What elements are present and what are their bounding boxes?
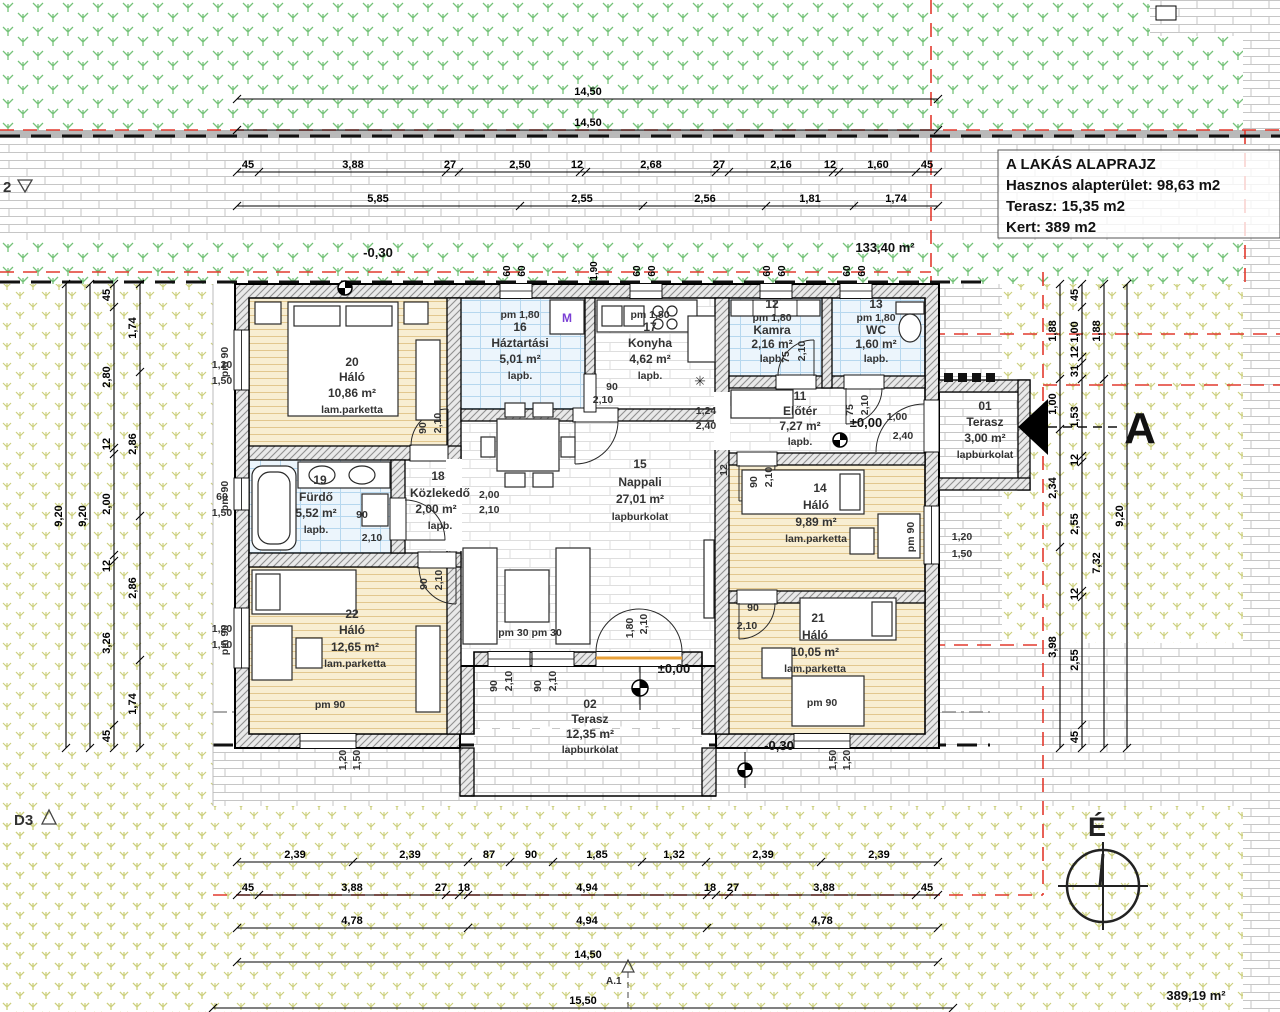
room-area: 10,05 m² — [791, 645, 839, 659]
svg-text:14,50: 14,50 — [574, 86, 602, 98]
room-name: WC — [866, 323, 886, 337]
svg-text:1,00: 1,00 — [1069, 321, 1081, 342]
window-h-halo21-b: 1,50 — [827, 750, 839, 771]
chair — [850, 528, 874, 554]
svg-text:45: 45 — [1069, 289, 1081, 301]
svg-text:14,50: 14,50 — [574, 949, 602, 961]
sill-label-halo21-bottom: pm 90 — [807, 697, 838, 709]
plan-title: A LAKÁS ALAPRAJZ — [1006, 156, 1156, 173]
sofa — [463, 548, 497, 644]
svg-text:12: 12 — [1069, 454, 1081, 466]
svg-text:90: 90 — [525, 849, 537, 861]
door-furdo-frame — [390, 498, 406, 540]
room-name: Háztartási — [491, 336, 548, 350]
room-floor: lapburkolat — [612, 511, 669, 523]
svg-text:3,88: 3,88 — [341, 882, 362, 894]
dim-60-3: 60 — [632, 265, 643, 277]
room-number: 16 — [513, 320, 527, 334]
svg-text:9,20: 9,20 — [1114, 505, 1126, 526]
room-name: Háló — [802, 628, 828, 642]
svg-text:2,39: 2,39 — [399, 849, 420, 861]
corner-symbol — [1156, 6, 1176, 20]
room-name: Nappali — [618, 475, 661, 489]
sill-label-halo22-bottom: pm 90 — [315, 699, 346, 711]
room-area: 12,65 m² — [331, 640, 379, 654]
north-label: É — [1088, 811, 1106, 842]
door-wc-frame — [844, 375, 884, 389]
sill-label-terasz-windows: pm 30 pm 30 — [498, 627, 562, 639]
terasz01-post-3 — [972, 373, 981, 382]
svg-text:2,39: 2,39 — [752, 849, 773, 861]
room-area: 3,00 m² — [964, 431, 1005, 445]
door-kamra-frame — [776, 375, 816, 389]
door-halo22-frame — [418, 552, 456, 568]
chair — [505, 403, 525, 417]
room-floor: lam.parketta — [784, 663, 846, 675]
washing-machine-icon: M — [562, 311, 572, 325]
opening-eloter-h: 2,40 — [696, 420, 717, 432]
svg-text:2,86: 2,86 — [127, 433, 139, 454]
terasz01-wall-bottom — [939, 478, 1030, 490]
floorplan-drawing: 14,50 14,50 453,88272,50122,68272,16121,… — [0, 0, 1280, 1012]
useful-area-line: Hasznos alapterület: 98,63 m2 — [1006, 177, 1220, 194]
room-number: 17 — [643, 320, 657, 334]
room-floor: lapb. — [508, 370, 533, 382]
dim-60-6: 60 — [777, 265, 788, 277]
room-area: 7,27 m² — [779, 419, 820, 433]
svg-text:9,20: 9,20 — [77, 505, 89, 526]
svg-text:4,94: 4,94 — [576, 915, 598, 927]
room-number: 21 — [811, 611, 825, 625]
window-halo21-bottom — [794, 734, 850, 749]
window-nappali1-w: 90 — [488, 680, 500, 692]
window-nappali1-h: 2,10 — [503, 671, 515, 692]
dim-60-5: 60 — [762, 265, 773, 277]
bathtub-inner — [258, 472, 290, 544]
door-halo20-frame — [410, 445, 448, 461]
room-area: 5,01 m² — [499, 352, 540, 366]
chair — [533, 473, 553, 487]
room-floor: lam.parketta — [321, 404, 383, 416]
garden-area-line: Kert: 389 m2 — [1006, 219, 1096, 236]
svg-text:1,81: 1,81 — [799, 193, 820, 205]
svg-text:1,60: 1,60 — [867, 159, 888, 171]
marker-2-label: 2 — [3, 179, 11, 196]
room-area: 12,35 m² — [566, 727, 614, 741]
svg-text:87: 87 — [483, 849, 495, 861]
door-french-h: 2,10 — [638, 614, 650, 635]
room-area: 2,16 m² — [751, 337, 792, 351]
furniture-haztartasi: M — [550, 300, 584, 334]
window-w-halo21-b: 1,20 — [841, 750, 853, 771]
chair — [505, 473, 525, 487]
door-halo14-w: 90 — [748, 476, 760, 488]
svg-text:9,20: 9,20 — [53, 505, 65, 526]
svg-text:4,78: 4,78 — [811, 915, 832, 927]
coffee-table — [505, 570, 549, 622]
svg-text:1,53: 1,53 — [1069, 406, 1081, 427]
svg-text:2,80: 2,80 — [101, 366, 113, 387]
room-number: 12 — [765, 297, 779, 311]
window-halo22-left — [234, 608, 249, 668]
chair — [561, 437, 575, 457]
section-letter: A — [1124, 404, 1156, 453]
window-h-halo22-b: 1,50 — [351, 750, 363, 771]
room-number: 19 — [313, 473, 327, 487]
door-entry-w: 1,00 — [887, 411, 908, 423]
door-konyha-w: 90 — [606, 381, 618, 393]
svg-text:1,74: 1,74 — [127, 316, 139, 338]
door-halo14-frame — [737, 452, 777, 466]
svg-text:12: 12 — [824, 159, 836, 171]
svg-text:3,98: 3,98 — [1047, 636, 1059, 657]
door-furdo-w: 90 — [356, 509, 368, 521]
svg-text:27: 27 — [727, 882, 739, 894]
svg-text:45: 45 — [1069, 731, 1081, 743]
door-halo20-w: 90 — [417, 422, 429, 434]
paving-bottom-right — [990, 643, 1243, 806]
opening-kozlekedo-w: 2,00 — [479, 489, 500, 501]
svg-text:2,39: 2,39 — [284, 849, 305, 861]
level-entry-text: ±0,00 — [850, 415, 882, 430]
sill-label-halo14: pm 90 — [905, 522, 917, 553]
room-floor: lam.parketta — [785, 533, 847, 545]
boiler-icon: ✳ — [694, 373, 706, 389]
room-area: 4,62 m² — [629, 352, 670, 366]
toilet-bowl — [899, 314, 921, 342]
opening-eloter-w: 1,24 — [696, 405, 717, 417]
level-marker-top — [338, 281, 352, 295]
wardrobe — [416, 626, 440, 712]
door-haztartasi-frame — [584, 374, 596, 412]
svg-text:12: 12 — [101, 560, 113, 572]
house: M ✳ — [212, 284, 1030, 797]
room-area: 10,86 m² — [328, 386, 376, 400]
terasz01-post-1 — [944, 373, 953, 382]
wall-thickness: 12 — [718, 464, 730, 476]
window-nappali2-w: 90 — [532, 680, 544, 692]
room-number: 01 — [978, 399, 992, 413]
door-kamra-h: 2,10 — [796, 341, 808, 362]
svg-text:1,88: 1,88 — [1091, 320, 1103, 341]
svg-text:4,78: 4,78 — [341, 915, 362, 927]
door-entry-h: 2,40 — [893, 430, 914, 442]
window-h-furdo: 1,50 — [212, 507, 233, 519]
room-number: 22 — [345, 607, 359, 621]
room-number: 18 — [431, 469, 445, 483]
svg-text:2,00: 2,00 — [101, 493, 113, 514]
door-furdo-h: 2,10 — [362, 532, 383, 544]
pillow — [294, 306, 340, 326]
svg-text:3,26: 3,26 — [101, 632, 113, 653]
svg-text:3,88: 3,88 — [342, 159, 363, 171]
svg-text:1,88: 1,88 — [1047, 320, 1059, 341]
room-name: Háló — [339, 370, 365, 384]
svg-text:14,50: 14,50 — [574, 117, 602, 129]
svg-text:1,00: 1,00 — [1047, 393, 1059, 414]
terrace-area-line: Terasz: 15,35 m2 — [1006, 198, 1125, 215]
tv-cabinet — [704, 540, 714, 618]
svg-text:4,94: 4,94 — [576, 882, 598, 894]
svg-text:27: 27 — [444, 159, 456, 171]
room-number: 11 — [794, 389, 807, 403]
svg-text:45: 45 — [242, 159, 254, 171]
window-w-halo14: 1,20 — [952, 531, 973, 543]
door-halo21-w: 90 — [747, 602, 759, 614]
opening-kozlekedo-h: 2,10 — [479, 504, 500, 516]
svg-text:2,50: 2,50 — [509, 159, 530, 171]
room-name: Háló — [803, 498, 829, 512]
door-halo22-w: 90 — [418, 578, 430, 590]
chair — [296, 638, 322, 668]
room-floor: lam.parketta — [324, 658, 386, 670]
door-konyha-h: 2,10 — [593, 394, 614, 406]
window-nappali-2 — [532, 652, 574, 667]
plot-area-text: 389,19 m² — [1166, 988, 1226, 1003]
room-area: 9,89 m² — [795, 515, 836, 529]
wardrobe — [416, 340, 440, 420]
svg-text:1,32: 1,32 — [663, 849, 684, 861]
door-halo22-h: 2,10 — [433, 570, 445, 591]
svg-text:45: 45 — [101, 730, 113, 742]
wall-p8 — [822, 298, 832, 388]
svg-text:27: 27 — [435, 882, 447, 894]
room-floor: lapb. — [864, 353, 889, 365]
window-furdo — [234, 478, 249, 510]
door-kamra-w: 75 — [780, 351, 792, 363]
sink — [349, 466, 375, 484]
window-halo14 — [924, 506, 939, 564]
svg-text:18: 18 — [704, 882, 716, 894]
door-halo14-h: 2,10 — [763, 467, 775, 488]
marker-d3-label: D3 — [14, 812, 33, 829]
room-floor: lapburkolat — [957, 449, 1014, 461]
svg-text:45: 45 — [101, 289, 113, 301]
room-floor: lapb. — [638, 370, 663, 382]
svg-text:27: 27 — [713, 159, 725, 171]
room-name: Kamra — [753, 323, 791, 337]
window-halo20 — [234, 330, 249, 390]
door-halo21-h: 2,10 — [737, 620, 758, 632]
room-number: 13 — [869, 297, 883, 311]
svg-text:45: 45 — [242, 882, 254, 894]
dim-190: 1,90 — [589, 261, 600, 281]
window-nappali-1 — [488, 652, 530, 667]
svg-text:5,85: 5,85 — [367, 193, 388, 205]
level-top-text: -0,30 — [363, 245, 393, 260]
marker-a1-label: A.1 — [606, 976, 622, 987]
window-w-halo22-b: 1,20 — [337, 750, 349, 771]
room-name: Előtér — [783, 404, 817, 418]
room-name: Konyha — [628, 336, 672, 350]
room-number: 14 — [813, 481, 827, 495]
door-wc-h: 2,10 — [859, 395, 871, 416]
svg-text:15,50: 15,50 — [569, 995, 597, 1007]
title-block: A LAKÁS ALAPRAJZ Hasznos alapterület: 98… — [998, 150, 1280, 238]
desk — [252, 626, 292, 680]
pillow — [840, 474, 860, 510]
room-area: 27,01 m² — [616, 492, 664, 506]
kitchen-sink — [602, 306, 622, 326]
room-name: Terasz — [966, 415, 1003, 429]
window-w-furdo: 60 — [216, 491, 228, 503]
svg-text:12: 12 — [1069, 588, 1081, 600]
room-number: 20 — [345, 355, 359, 369]
svg-text:12: 12 — [1069, 346, 1081, 358]
pillow — [872, 602, 892, 636]
green-hedge-top — [0, 0, 1280, 130]
svg-text:2,68: 2,68 — [640, 159, 661, 171]
room-name: Terasz — [571, 712, 608, 726]
svg-text:2,55: 2,55 — [571, 193, 592, 205]
nightstand — [255, 302, 281, 324]
door-haztartasi-konyha — [584, 374, 596, 412]
door-french-w: 1,80 — [624, 618, 636, 639]
floorplan-page: 14,50 14,50 453,88272,50122,68272,16121,… — [0, 0, 1280, 1012]
window-halo22-bottom — [300, 734, 356, 749]
dim-60-2: 60 — [517, 265, 528, 277]
svg-text:45: 45 — [921, 882, 933, 894]
dim-60-8: 60 — [857, 265, 868, 277]
svg-text:2,55: 2,55 — [1069, 513, 1081, 534]
svg-text:1,85: 1,85 — [586, 849, 607, 861]
toilet-tank — [896, 302, 924, 314]
svg-text:12: 12 — [101, 438, 113, 450]
terasz01-post-4 — [986, 373, 995, 382]
terasz01-post-2 — [958, 373, 967, 382]
opening-nappali-eloter — [714, 392, 730, 450]
window-h-halo14: 1,50 — [952, 548, 973, 560]
window-haztartasi — [500, 284, 532, 299]
chair — [533, 403, 553, 417]
room-name: Háló — [339, 623, 365, 637]
window-konyha — [630, 284, 662, 299]
dim-60-4: 60 — [647, 265, 658, 277]
svg-text:1,74: 1,74 — [885, 193, 907, 205]
window-h-halo20: 1,50 — [212, 375, 233, 387]
room-area: 2,00 m² — [415, 502, 456, 516]
level-terrace-text: ±0,00 — [658, 661, 690, 676]
room-floor: lapb. — [428, 520, 453, 532]
wall-p6 — [715, 298, 729, 734]
chair — [481, 437, 495, 457]
covered-area-text: 133,40 m² — [855, 240, 915, 255]
room-name: Fürdő — [299, 490, 333, 504]
room-area: 1,60 m² — [855, 337, 896, 351]
svg-text:2,56: 2,56 — [694, 193, 715, 205]
fridge — [688, 316, 715, 362]
svg-text:3,88: 3,88 — [813, 882, 834, 894]
window-nappali2-h: 2,10 — [547, 671, 559, 692]
svg-text:2,86: 2,86 — [127, 577, 139, 598]
terrace-pier-left — [460, 748, 474, 796]
window-wc — [840, 284, 872, 299]
level-marker-entry — [833, 433, 847, 447]
garden-right — [1002, 284, 1243, 643]
svg-text:2,39: 2,39 — [868, 849, 889, 861]
pillow — [256, 574, 280, 610]
dim-60-1: 60 — [502, 265, 513, 277]
door-entry-frame — [924, 400, 939, 452]
svg-text:2,55: 2,55 — [1069, 649, 1081, 670]
dining-table — [497, 419, 559, 471]
room-number: 15 — [633, 457, 647, 471]
door-halo20-h: 2,10 — [432, 413, 444, 434]
dim-60-7: 60 — [842, 265, 853, 277]
svg-text:31: 31 — [1069, 365, 1081, 377]
terrace-pier-right — [702, 748, 716, 796]
room-number: 02 — [583, 697, 597, 711]
svg-text:12: 12 — [571, 159, 583, 171]
svg-text:1,74: 1,74 — [127, 692, 139, 714]
nightstand — [404, 302, 428, 324]
room-floor: lapb. — [788, 436, 813, 448]
svg-text:18: 18 — [458, 882, 470, 894]
room-floor: lapburkolat — [562, 744, 619, 756]
svg-text:45: 45 — [921, 159, 933, 171]
room-name: Közlekedő — [410, 486, 470, 500]
svg-text:2,34: 2,34 — [1047, 476, 1059, 498]
window-w-halo22: 1,20 — [212, 623, 233, 635]
window-w-halo20: 1,20 — [212, 359, 233, 371]
svg-text:7,32: 7,32 — [1091, 552, 1103, 573]
pillow — [346, 306, 392, 326]
room-floor: lapb. — [304, 524, 329, 536]
svg-text:2,16: 2,16 — [770, 159, 791, 171]
level-front-text: -0,30 — [764, 738, 794, 753]
room-area: 5,52 m² — [295, 506, 336, 520]
window-h-halo22: 1,50 — [212, 639, 233, 651]
